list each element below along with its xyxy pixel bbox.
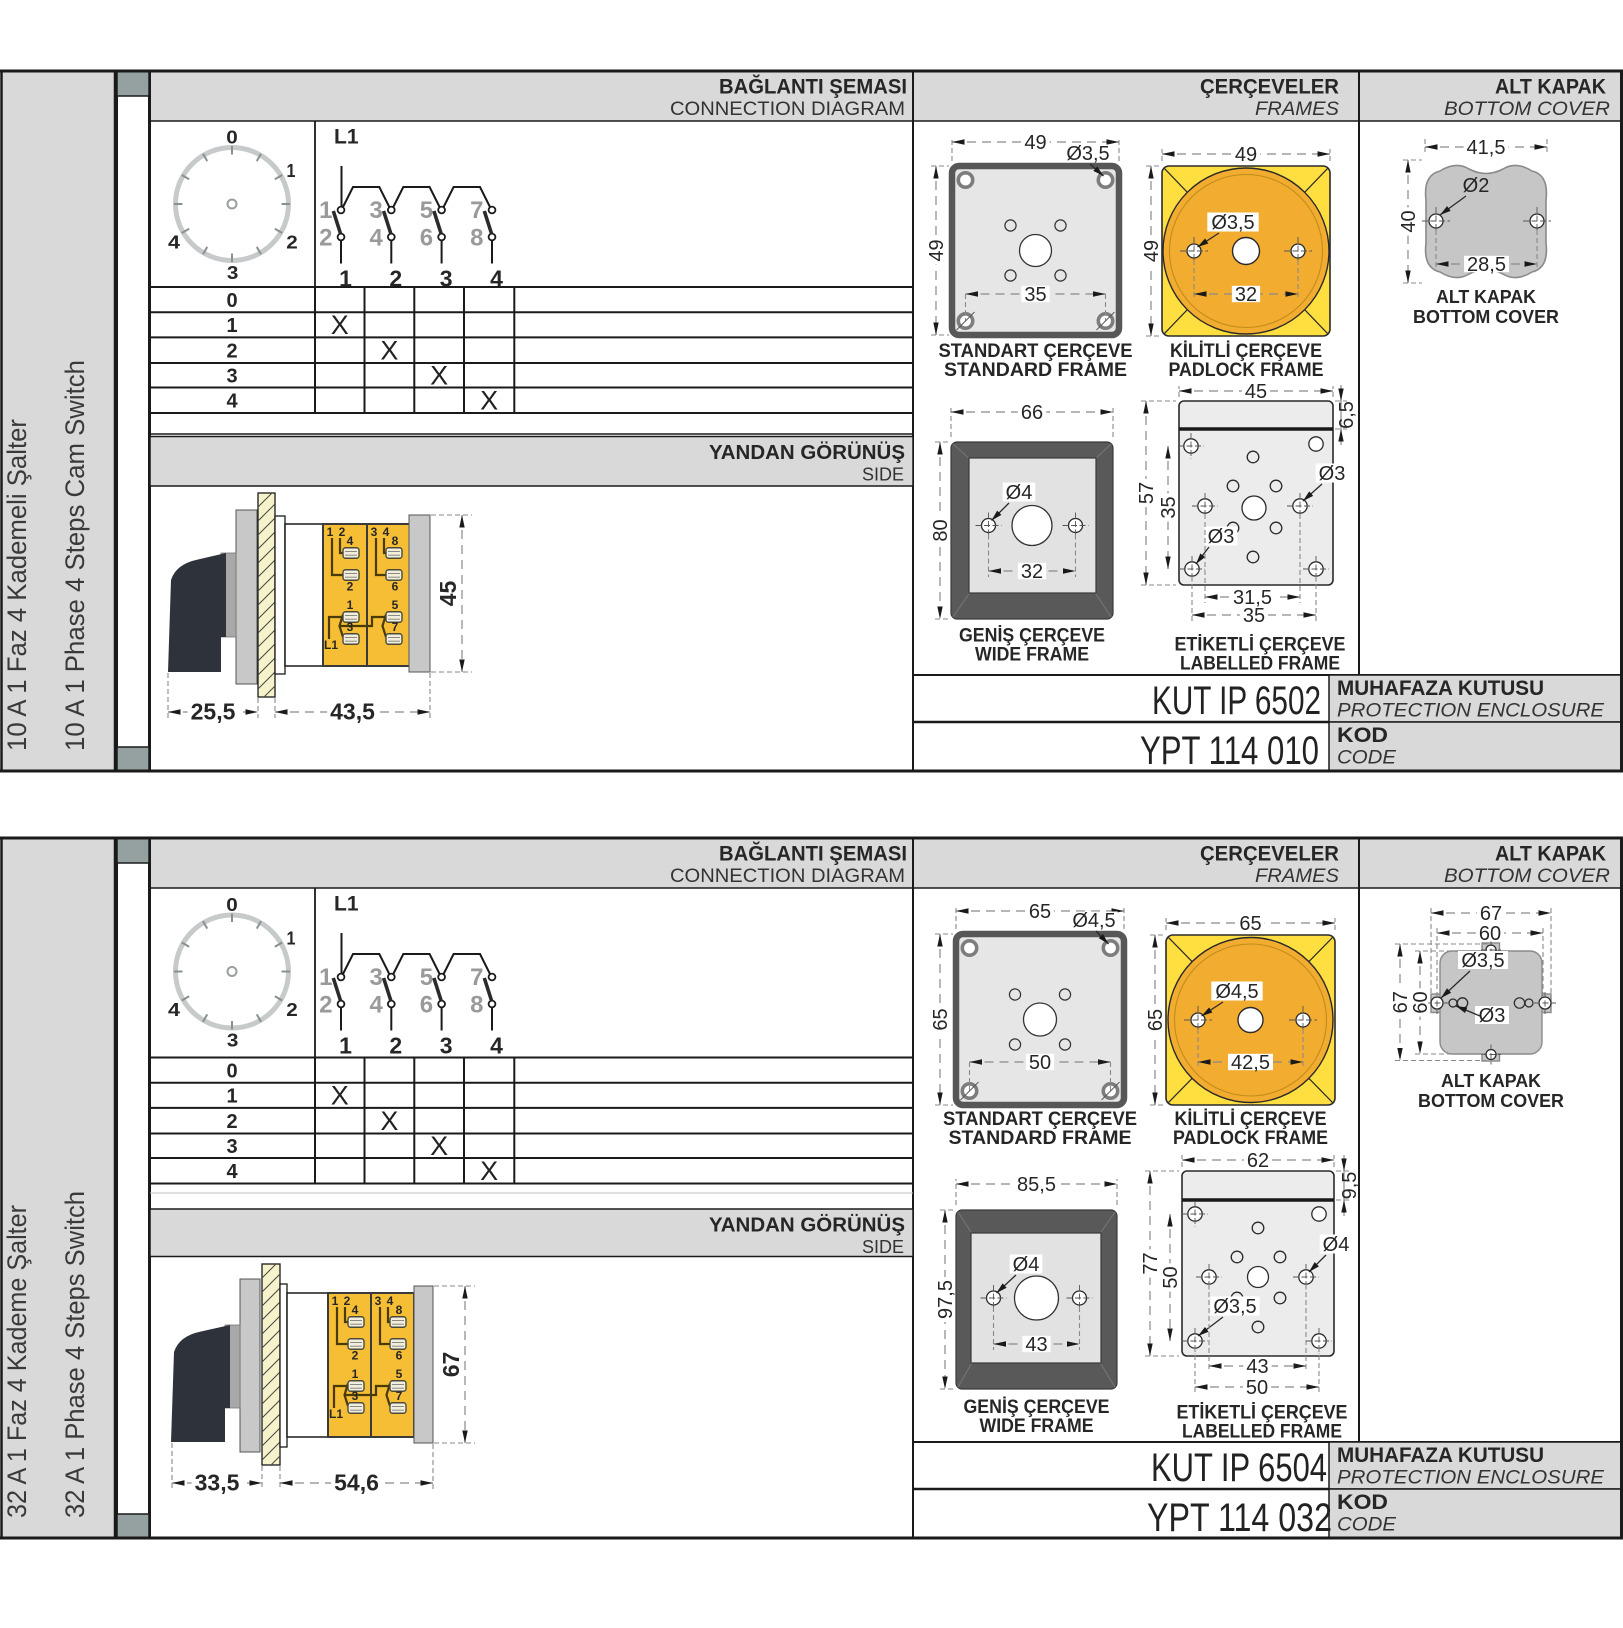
svg-text:1: 1	[287, 929, 296, 949]
svg-text:7: 7	[392, 620, 399, 634]
svg-text:32 A 1 Faz 4 Kademe Şalter: 32 A 1 Faz 4 Kademe Şalter	[2, 1205, 32, 1518]
svg-text:WIDE FRAME: WIDE FRAME	[975, 644, 1089, 666]
svg-text:67: 67	[438, 1352, 464, 1378]
svg-text:1: 1	[339, 1032, 352, 1058]
svg-text:6: 6	[420, 224, 433, 251]
svg-text:1: 1	[327, 525, 334, 539]
svg-text:YPT 114 010: YPT 114 010	[1140, 729, 1319, 773]
svg-text:3: 3	[352, 1389, 359, 1403]
svg-text:49: 49	[1024, 132, 1046, 154]
svg-text:Ø4: Ø4	[1323, 1234, 1350, 1256]
svg-text:BOTTOM COVER: BOTTOM COVER	[1413, 306, 1559, 327]
svg-text:25,5: 25,5	[191, 699, 236, 725]
svg-text:X: X	[480, 386, 498, 416]
svg-text:1: 1	[226, 315, 237, 337]
svg-text:4: 4	[226, 1161, 238, 1183]
svg-text:2: 2	[389, 1032, 402, 1058]
svg-text:ALT KAPAK: ALT KAPAK	[1436, 286, 1537, 307]
svg-text:3: 3	[227, 1031, 239, 1051]
svg-text:X: X	[331, 310, 349, 340]
svg-text:PADLOCK FRAME: PADLOCK FRAME	[1173, 1127, 1328, 1149]
svg-text:Ø3: Ø3	[1479, 1005, 1506, 1027]
svg-text:ALT KAPAK: ALT KAPAK	[1495, 843, 1606, 866]
svg-text:49: 49	[926, 239, 948, 261]
svg-text:42,5: 42,5	[1231, 1052, 1270, 1074]
svg-text:7: 7	[470, 197, 483, 224]
svg-text:8: 8	[392, 534, 399, 548]
svg-text:43,5: 43,5	[330, 699, 375, 725]
svg-text:40: 40	[1398, 210, 1420, 232]
svg-text:54,6: 54,6	[334, 1470, 379, 1496]
svg-text:Ø4: Ø4	[1006, 482, 1033, 504]
svg-text:32: 32	[1235, 284, 1257, 306]
svg-text:3: 3	[375, 1294, 382, 1308]
svg-text:L1: L1	[334, 126, 359, 149]
svg-text:10 A 1 Phase 4 Steps Cam Switc: 10 A 1 Phase 4 Steps Cam Switch	[60, 360, 90, 751]
svg-text:7: 7	[396, 1389, 403, 1403]
svg-text:X: X	[380, 336, 398, 366]
svg-text:1: 1	[319, 197, 332, 224]
svg-text:L1: L1	[334, 893, 359, 916]
svg-text:CONNECTION DIAGRAM: CONNECTION DIAGRAM	[670, 99, 905, 120]
svg-text:33,5: 33,5	[195, 1470, 240, 1496]
svg-text:MUHAFAZA KUTUSU: MUHAFAZA KUTUSU	[1337, 1444, 1544, 1467]
svg-text:4: 4	[369, 991, 383, 1018]
svg-text:2: 2	[344, 1294, 351, 1308]
svg-text:35: 35	[1024, 284, 1046, 306]
svg-text:FRAMES: FRAMES	[1255, 99, 1339, 120]
svg-text:35: 35	[1158, 496, 1180, 518]
svg-text:3: 3	[347, 620, 354, 634]
svg-text:65: 65	[1029, 901, 1051, 923]
svg-text:85,5: 85,5	[1017, 1174, 1056, 1196]
svg-text:2: 2	[319, 224, 332, 251]
svg-text:1: 1	[319, 964, 332, 991]
svg-text:FRAMES: FRAMES	[1255, 866, 1339, 887]
svg-text:Ø2: Ø2	[1463, 175, 1490, 197]
svg-text:65: 65	[1239, 913, 1261, 935]
svg-text:4: 4	[490, 1032, 503, 1058]
svg-text:62: 62	[1247, 1150, 1269, 1172]
svg-text:66: 66	[1021, 402, 1043, 424]
svg-text:1: 1	[332, 1294, 339, 1308]
svg-text:5: 5	[420, 964, 433, 991]
svg-text:PROTECTION ENCLOSURE: PROTECTION ENCLOSURE	[1337, 700, 1605, 722]
svg-text:80: 80	[930, 519, 952, 541]
svg-text:Ø3,5: Ø3,5	[1213, 1296, 1256, 1318]
svg-text:32: 32	[1021, 561, 1043, 583]
svg-text:1: 1	[226, 1086, 237, 1108]
svg-text:67: 67	[1390, 991, 1412, 1013]
svg-text:YPT 114 032: YPT 114 032	[1147, 1496, 1332, 1540]
svg-text:Ø3,5: Ø3,5	[1066, 143, 1109, 165]
svg-text:4: 4	[383, 525, 390, 539]
svg-text:2: 2	[286, 233, 298, 253]
svg-text:4: 4	[347, 534, 354, 548]
svg-text:BOTTOM COVER: BOTTOM COVER	[1418, 1090, 1564, 1111]
svg-text:STANDARD FRAME: STANDARD FRAME	[944, 359, 1127, 381]
svg-text:2: 2	[347, 580, 354, 594]
svg-text:4: 4	[387, 1294, 394, 1308]
svg-text:X: X	[380, 1106, 398, 1136]
svg-text:3: 3	[369, 964, 382, 991]
svg-text:6: 6	[420, 991, 433, 1018]
svg-text:KOD: KOD	[1337, 724, 1388, 747]
svg-text:60: 60	[1479, 923, 1501, 945]
svg-text:KOD: KOD	[1337, 1491, 1388, 1514]
svg-text:4: 4	[226, 391, 238, 413]
svg-text:9,5: 9,5	[1339, 1172, 1361, 1200]
svg-text:Ø3,5: Ø3,5	[1461, 950, 1504, 972]
svg-text:8: 8	[470, 224, 483, 251]
svg-text:3: 3	[371, 525, 378, 539]
svg-text:X: X	[430, 1131, 448, 1161]
svg-text:41,5: 41,5	[1467, 137, 1506, 159]
svg-text:2: 2	[352, 1349, 359, 1363]
svg-text:KUT IP 6502: KUT IP 6502	[1152, 679, 1321, 723]
svg-text:3: 3	[369, 197, 382, 224]
svg-text:KUT IP 6504: KUT IP 6504	[1151, 1446, 1327, 1490]
svg-text:SIDE: SIDE	[862, 464, 904, 484]
svg-text:1: 1	[347, 598, 354, 612]
svg-text:BAĞLANTI ŞEMASI: BAĞLANTI ŞEMASI	[719, 842, 907, 866]
svg-text:28,5: 28,5	[1467, 254, 1506, 276]
svg-text:ALT KAPAK: ALT KAPAK	[1441, 1070, 1542, 1091]
svg-text:YANDAN GÖRÜNÜŞ: YANDAN GÖRÜNÜŞ	[709, 1213, 905, 1236]
svg-text:ALT KAPAK: ALT KAPAK	[1495, 76, 1606, 99]
svg-text:PROTECTION ENCLOSURE: PROTECTION ENCLOSURE	[1337, 1467, 1605, 1489]
svg-text:Ø4,5: Ø4,5	[1072, 910, 1115, 932]
svg-text:L1: L1	[324, 638, 338, 652]
svg-text:2: 2	[226, 1111, 237, 1133]
svg-text:43: 43	[1246, 1356, 1268, 1378]
svg-text:65: 65	[930, 1008, 952, 1030]
svg-text:2: 2	[226, 341, 237, 363]
svg-text:Ø3: Ø3	[1208, 526, 1235, 548]
svg-text:ÇERÇEVELER: ÇERÇEVELER	[1200, 843, 1339, 866]
svg-text:50: 50	[1246, 1377, 1268, 1399]
svg-text:77: 77	[1140, 1252, 1162, 1274]
svg-text:CODE: CODE	[1337, 1514, 1397, 1536]
svg-text:3: 3	[226, 366, 237, 388]
svg-text:CONNECTION DIAGRAM: CONNECTION DIAGRAM	[670, 866, 905, 887]
svg-text:PADLOCK FRAME: PADLOCK FRAME	[1169, 359, 1324, 381]
svg-text:10 A 1 Faz 4 Kademeli Şalter: 10 A 1 Faz 4 Kademeli Şalter	[2, 419, 32, 751]
svg-text:STANDARD FRAME: STANDARD FRAME	[949, 1127, 1132, 1149]
svg-text:5: 5	[420, 197, 433, 224]
svg-text:4: 4	[369, 224, 383, 251]
svg-text:BOTTOM COVER: BOTTOM COVER	[1444, 866, 1610, 887]
svg-text:0: 0	[226, 895, 238, 915]
svg-text:60: 60	[1410, 991, 1432, 1013]
svg-text:67: 67	[1480, 903, 1502, 925]
svg-text:50: 50	[1029, 1052, 1051, 1074]
svg-text:Ø3,5: Ø3,5	[1211, 212, 1254, 234]
svg-text:X: X	[480, 1156, 498, 1186]
svg-text:8: 8	[470, 991, 483, 1018]
svg-text:BOTTOM COVER: BOTTOM COVER	[1444, 99, 1610, 120]
svg-text:SIDE: SIDE	[862, 1237, 904, 1257]
svg-text:2: 2	[339, 525, 346, 539]
svg-text:5: 5	[392, 598, 399, 612]
svg-text:49: 49	[1235, 144, 1257, 166]
svg-text:7: 7	[470, 964, 483, 991]
svg-text:WIDE FRAME: WIDE FRAME	[980, 1415, 1094, 1437]
svg-text:3: 3	[440, 1032, 453, 1058]
svg-text:50: 50	[1160, 1266, 1182, 1288]
svg-text:0: 0	[226, 128, 238, 148]
svg-text:CODE: CODE	[1337, 747, 1397, 769]
svg-text:LABELLED FRAME: LABELLED FRAME	[1180, 653, 1340, 675]
svg-text:49: 49	[1141, 240, 1163, 262]
svg-text:97,5: 97,5	[935, 1280, 957, 1319]
svg-text:4: 4	[352, 1303, 359, 1317]
svg-text:32 A 1 Phase 4 Steps Switch: 32 A 1 Phase 4 Steps Switch	[60, 1191, 90, 1518]
svg-text:5: 5	[396, 1367, 403, 1381]
svg-text:Ø4,5: Ø4,5	[1215, 981, 1258, 1003]
svg-text:6: 6	[392, 580, 399, 594]
svg-text:Ø3: Ø3	[1319, 463, 1346, 485]
svg-text:6,5: 6,5	[1336, 401, 1358, 429]
svg-text:6: 6	[396, 1349, 403, 1363]
svg-text:1: 1	[352, 1367, 359, 1381]
svg-text:1: 1	[287, 161, 296, 181]
svg-text:LABELLED FRAME: LABELLED FRAME	[1182, 1421, 1342, 1443]
svg-text:45: 45	[435, 581, 461, 607]
svg-text:L1: L1	[329, 1407, 343, 1421]
svg-text:2: 2	[286, 1000, 298, 1020]
svg-text:57: 57	[1136, 482, 1158, 504]
svg-text:0: 0	[226, 1060, 237, 1082]
svg-text:YANDAN GÖRÜNÜŞ: YANDAN GÖRÜNÜŞ	[709, 441, 905, 464]
svg-text:2: 2	[319, 991, 332, 1018]
svg-text:43: 43	[1025, 1334, 1047, 1356]
svg-text:X: X	[331, 1081, 349, 1111]
svg-text:45: 45	[1245, 381, 1267, 403]
svg-text:4: 4	[168, 1000, 180, 1020]
svg-text:3: 3	[226, 1136, 237, 1158]
svg-text:X: X	[430, 361, 448, 391]
svg-text:8: 8	[396, 1303, 403, 1317]
svg-text:ÇERÇEVELER: ÇERÇEVELER	[1200, 76, 1339, 99]
svg-text:MUHAFAZA KUTUSU: MUHAFAZA KUTUSU	[1337, 677, 1544, 700]
svg-text:3: 3	[227, 263, 239, 283]
svg-text:65: 65	[1145, 1009, 1167, 1031]
svg-text:35: 35	[1243, 605, 1265, 627]
svg-text:Ø4: Ø4	[1013, 1254, 1040, 1276]
svg-text:BAĞLANTI ŞEMASI: BAĞLANTI ŞEMASI	[719, 75, 907, 99]
svg-text:0: 0	[226, 290, 237, 312]
svg-text:4: 4	[168, 233, 180, 253]
